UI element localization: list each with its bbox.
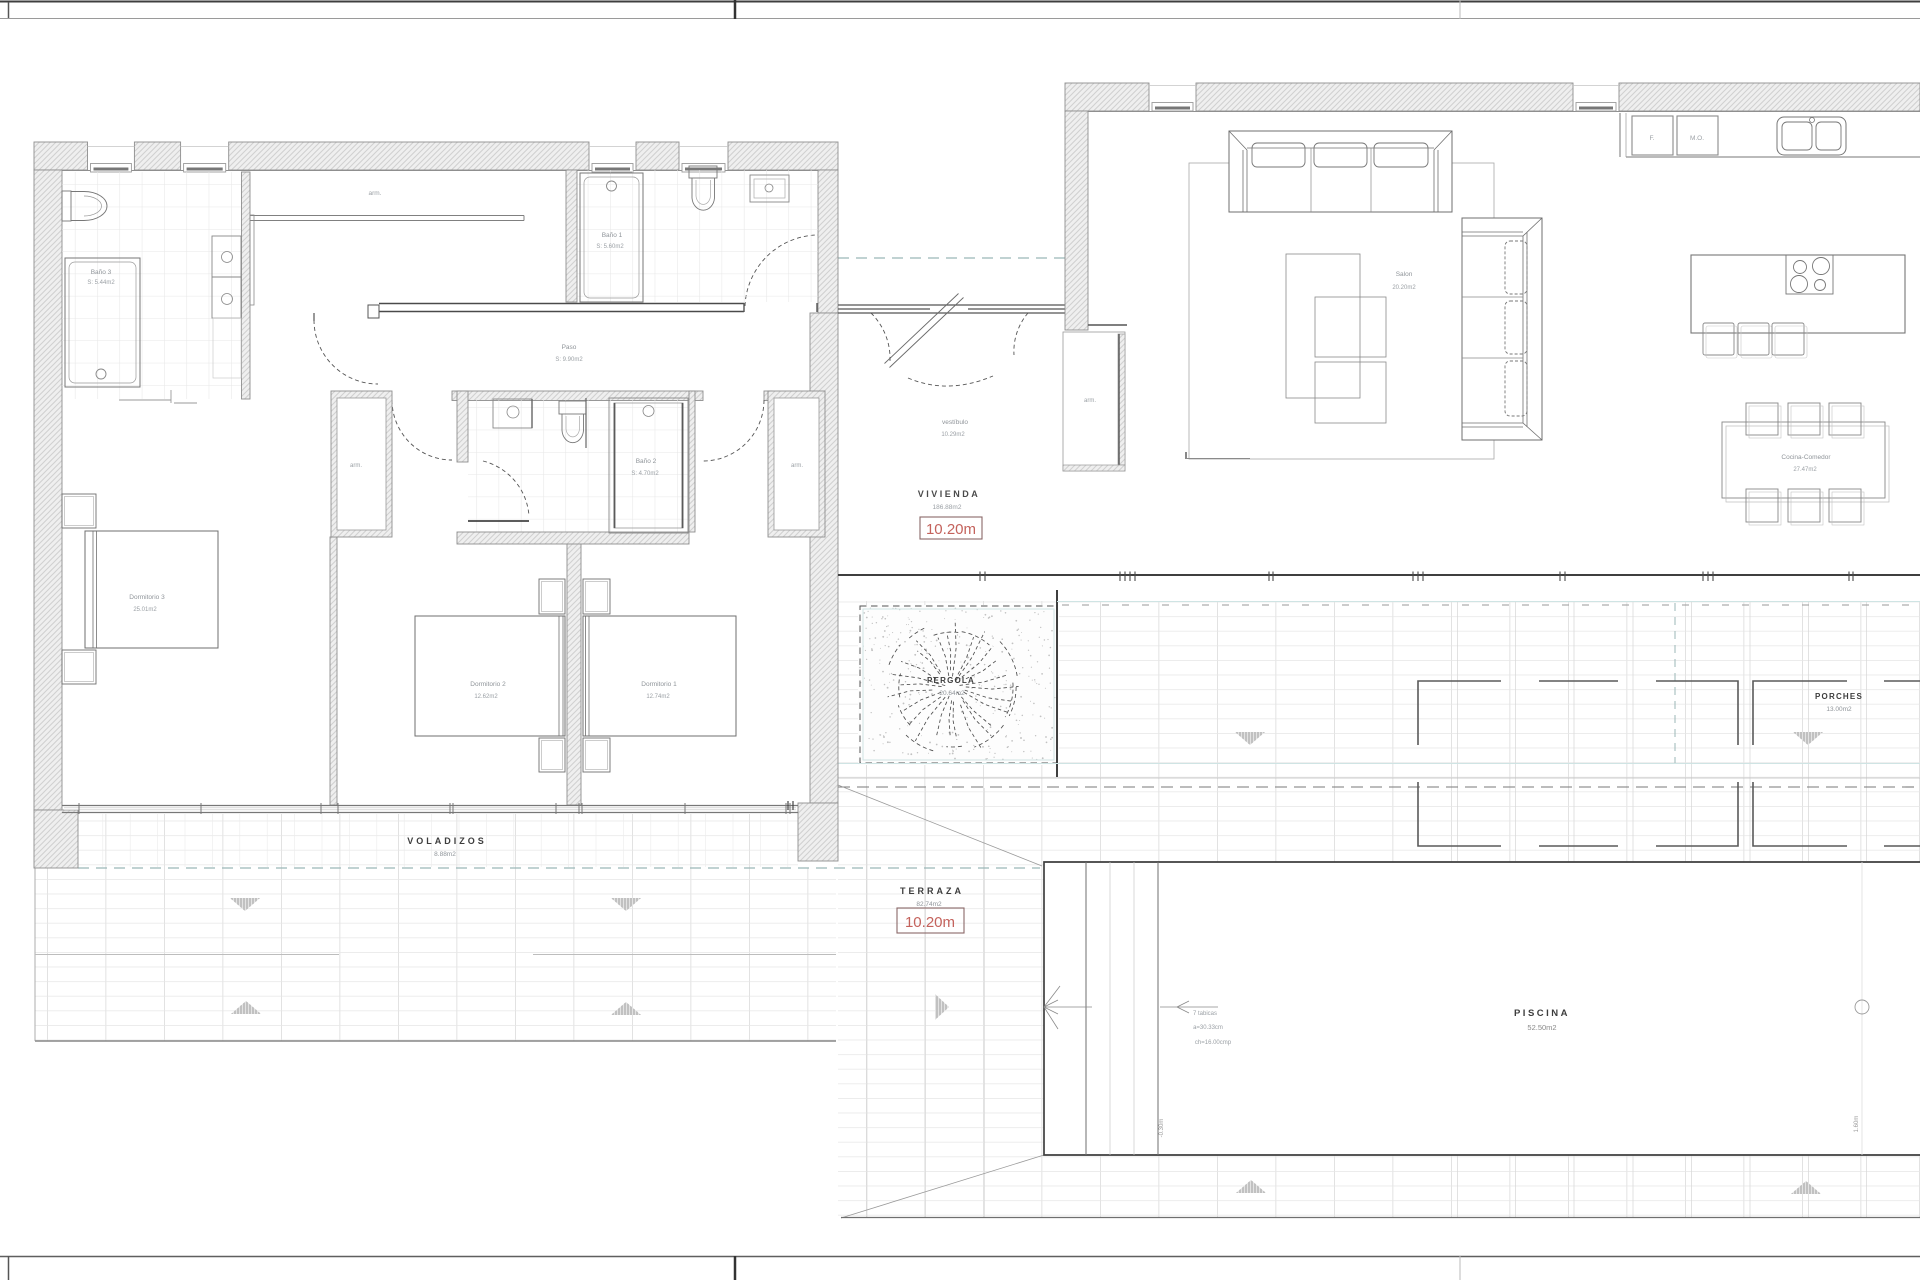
svg-text:Dormitorio 1: Dormitorio 1 bbox=[641, 681, 677, 688]
svg-text:PORCHES: PORCHES bbox=[1815, 692, 1863, 701]
svg-text:arm.: arm. bbox=[369, 190, 382, 197]
svg-text:20.20m2: 20.20m2 bbox=[1392, 285, 1416, 291]
svg-text:vestíbulo: vestíbulo bbox=[942, 419, 968, 426]
svg-text:Baño 2: Baño 2 bbox=[636, 458, 657, 465]
svg-text:Dormitorio 3: Dormitorio 3 bbox=[129, 594, 165, 601]
svg-text:25.01m2: 25.01m2 bbox=[133, 607, 157, 613]
svg-text:52.50m2: 52.50m2 bbox=[1527, 1023, 1556, 1032]
svg-text:186.88m2: 186.88m2 bbox=[933, 504, 962, 511]
svg-text:VOLADIZOS: VOLADIZOS bbox=[407, 836, 487, 846]
svg-text:Baño 1: Baño 1 bbox=[602, 232, 623, 239]
svg-text:8.88m2: 8.88m2 bbox=[434, 851, 456, 858]
svg-text:Dormitorio 2: Dormitorio 2 bbox=[470, 681, 506, 688]
svg-text:12.74m2: 12.74m2 bbox=[646, 694, 670, 700]
svg-text:27.47m2: 27.47m2 bbox=[1793, 467, 1817, 473]
svg-text:Salon: Salon bbox=[1396, 271, 1413, 278]
svg-text:S: 5.44m2: S: 5.44m2 bbox=[87, 280, 115, 286]
svg-text:a=30.33cm: a=30.33cm bbox=[1193, 1025, 1223, 1031]
svg-text:TERRAZA: TERRAZA bbox=[900, 886, 964, 896]
svg-text:arm.: arm. bbox=[1084, 398, 1096, 404]
svg-text:82.74m2: 82.74m2 bbox=[916, 901, 942, 908]
svg-text:12.62m2: 12.62m2 bbox=[474, 694, 498, 700]
svg-text:1.60m: 1.60m bbox=[1854, 1116, 1860, 1133]
svg-text:S: 4.70m2: S: 4.70m2 bbox=[631, 471, 659, 477]
svg-text:Cocina-Comedor: Cocina-Comedor bbox=[1781, 454, 1831, 461]
svg-text:13.00m2: 13.00m2 bbox=[1826, 706, 1852, 713]
svg-text:arm.: arm. bbox=[791, 463, 803, 469]
svg-text:VIVIENDA: VIVIENDA bbox=[918, 489, 981, 499]
svg-text:7 tabicas: 7 tabicas bbox=[1193, 1011, 1217, 1017]
svg-text:-0.30m: -0.30m bbox=[1159, 1119, 1165, 1138]
svg-text:Baño 3: Baño 3 bbox=[91, 269, 112, 276]
svg-text:M.O.: M.O. bbox=[1690, 135, 1704, 142]
svg-text:S: 9.90m2: S: 9.90m2 bbox=[555, 357, 583, 363]
svg-text:Paso: Paso bbox=[562, 344, 577, 351]
svg-text:PISCINA: PISCINA bbox=[1514, 1008, 1570, 1019]
svg-text:S: 5.60m2: S: 5.60m2 bbox=[596, 244, 624, 250]
svg-text:10.29m2: 10.29m2 bbox=[941, 432, 965, 438]
svg-text:20.64m2: 20.64m2 bbox=[939, 690, 965, 697]
svg-text:10.20m: 10.20m bbox=[905, 914, 955, 931]
svg-text:ch=16.00cmp: ch=16.00cmp bbox=[1195, 1040, 1232, 1046]
svg-text:PERGOLA: PERGOLA bbox=[927, 676, 975, 685]
svg-text:arm.: arm. bbox=[350, 463, 362, 469]
svg-text:10.20m: 10.20m bbox=[926, 521, 976, 538]
svg-text:F.: F. bbox=[1649, 135, 1654, 142]
